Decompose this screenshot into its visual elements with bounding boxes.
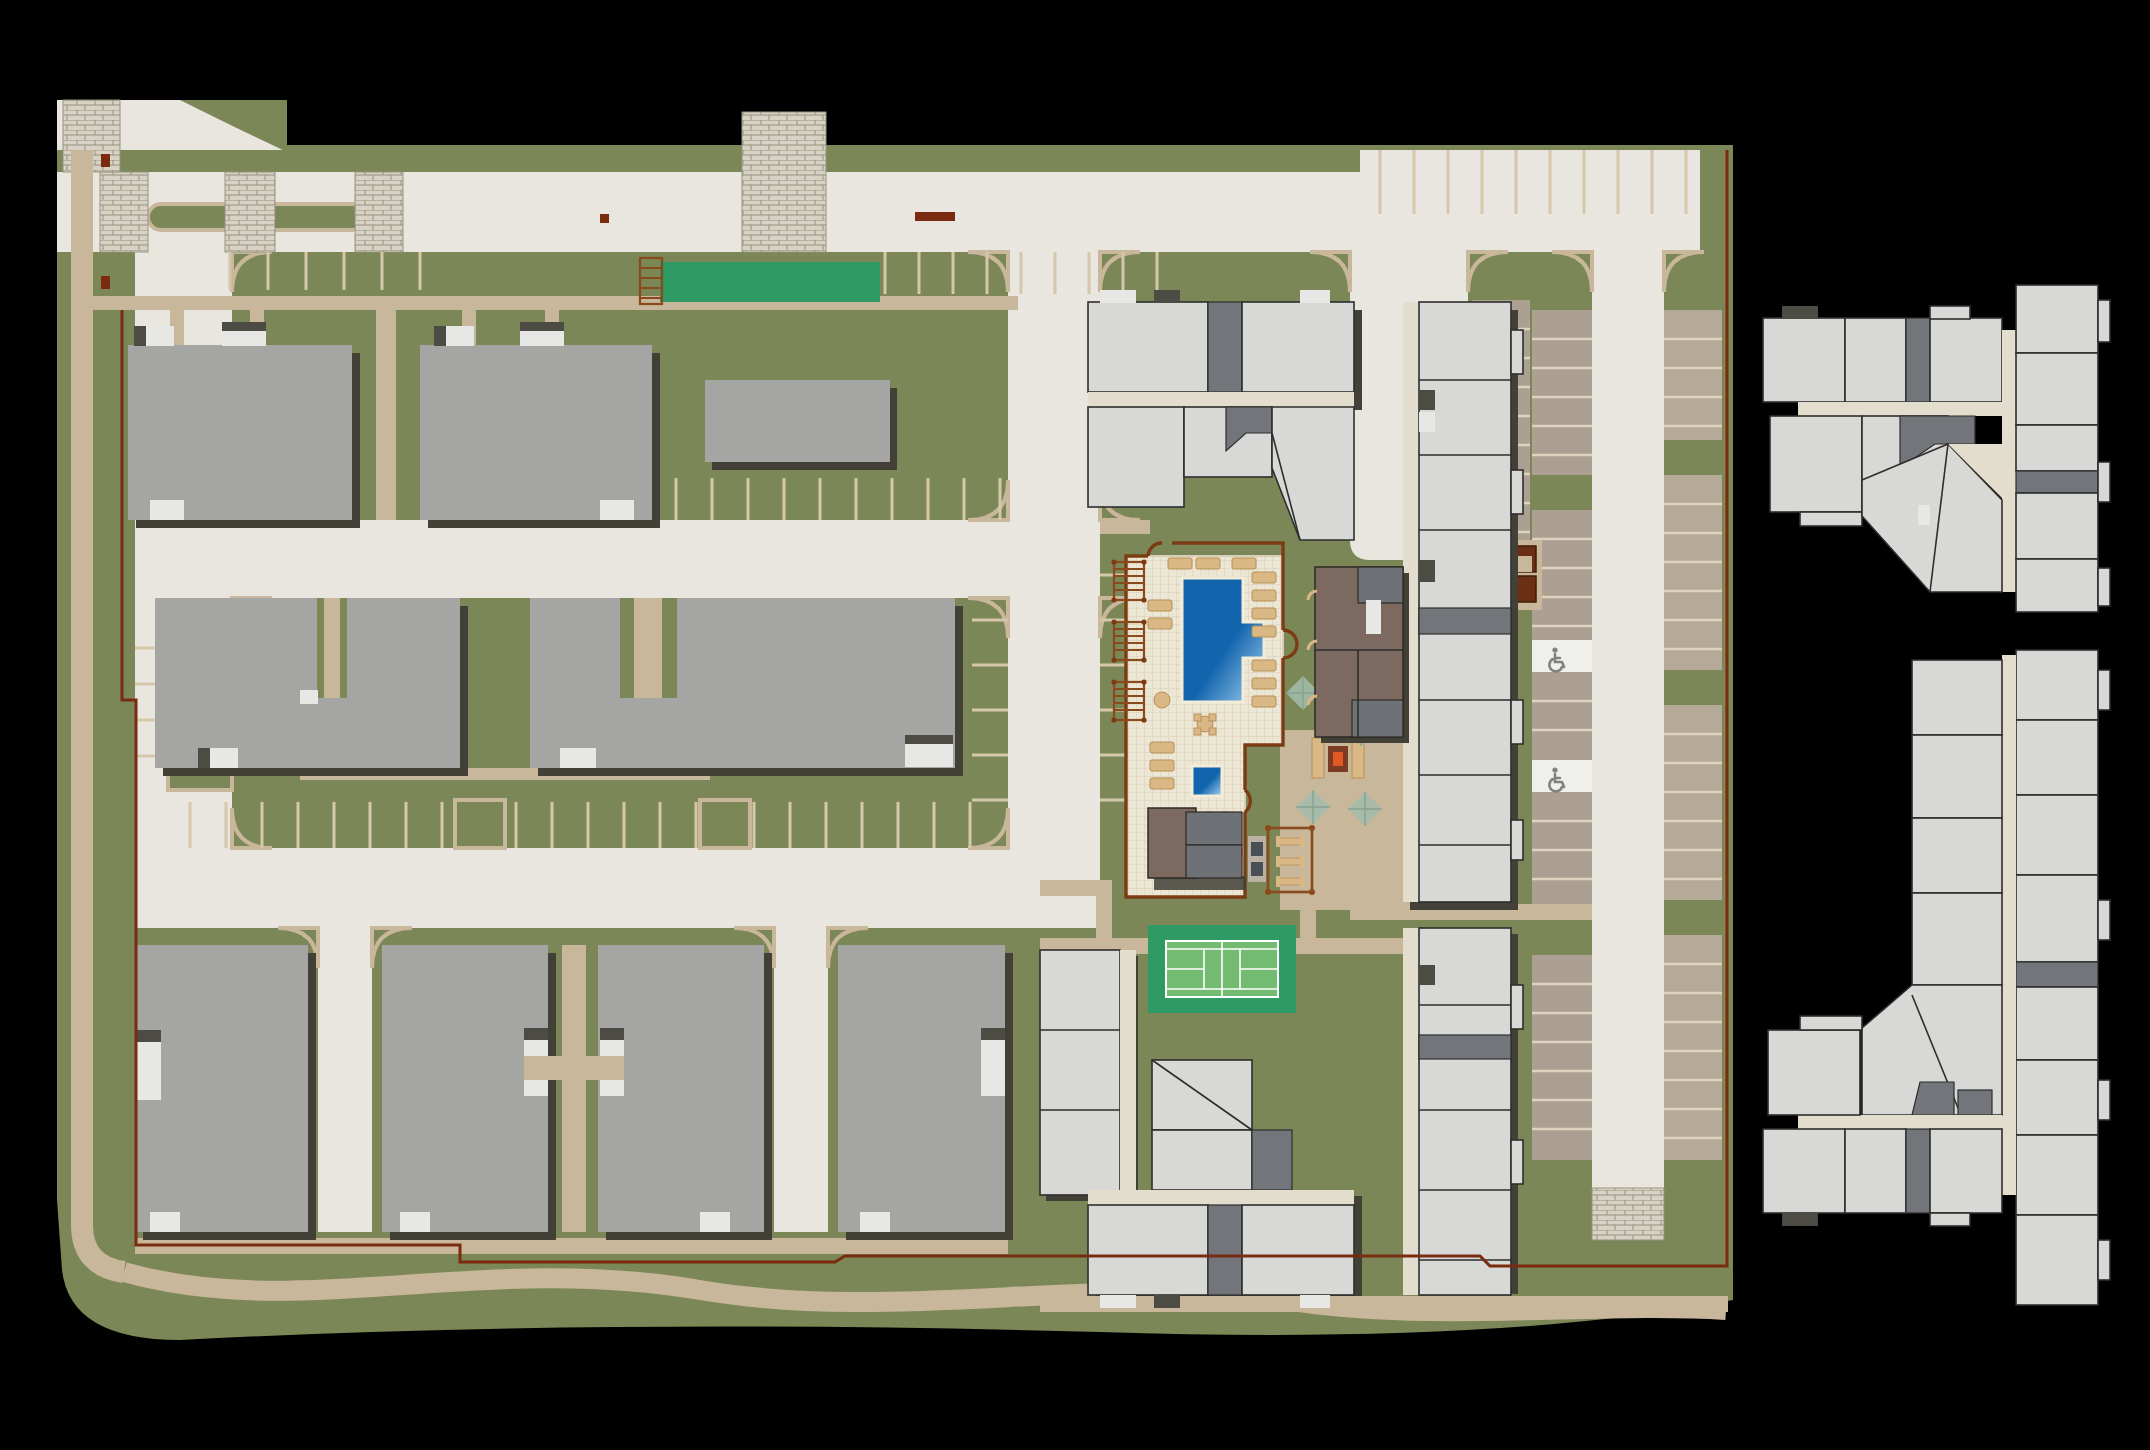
event-lawn-panel [660, 262, 880, 302]
utility-marker [600, 214, 609, 223]
east-drive-west-stalls [1532, 310, 1592, 1160]
spa [1192, 766, 1222, 796]
east-parking-drive [1592, 252, 1664, 1188]
row3-drive-stub-2 [774, 928, 828, 1232]
crosswalk-brick [355, 172, 403, 252]
tennis-court [1148, 925, 1296, 1013]
building-row1-a [128, 322, 360, 528]
floorplan-inset-lower [1763, 650, 2110, 1305]
picnic-table [1276, 856, 1304, 867]
south-walk-right-block [1040, 1296, 1728, 1312]
picnic-table [1276, 836, 1304, 847]
building-garage-north [705, 380, 897, 470]
row3-drive-stub-1 [318, 928, 372, 1232]
bbq-grill-station [1248, 836, 1266, 882]
utility-marker [101, 276, 110, 289]
building-row3-d [838, 945, 1013, 1240]
building-row3-a [135, 945, 316, 1240]
crosswalk-brick [225, 172, 275, 252]
clubhouse [1308, 567, 1409, 743]
building-row2-a [155, 598, 468, 776]
site-plan-canvas [0, 0, 2150, 1450]
center-north-south-road [1008, 252, 1100, 928]
east-drive-east-stalls [1664, 310, 1722, 1160]
crosswalk-brick [1592, 1188, 1664, 1240]
floorplan-inset-upper [1763, 285, 2110, 612]
north-parking-apron [1360, 150, 1700, 252]
mid-cross-road [232, 520, 1008, 598]
building-row3-b [382, 945, 556, 1240]
utility-marker [101, 154, 110, 167]
raised-crosswalk-brick [742, 112, 826, 252]
south-ring-road [135, 848, 1008, 928]
pool-equipment-building [1148, 808, 1246, 890]
entry-sign [915, 212, 955, 221]
crosswalk-brick [100, 172, 148, 252]
building-row2-b [530, 598, 963, 776]
building-row3-c [598, 945, 772, 1240]
building-row1-b [420, 322, 660, 528]
picnic-table [1276, 876, 1304, 887]
courtyard-cross-2 [372, 345, 386, 520]
